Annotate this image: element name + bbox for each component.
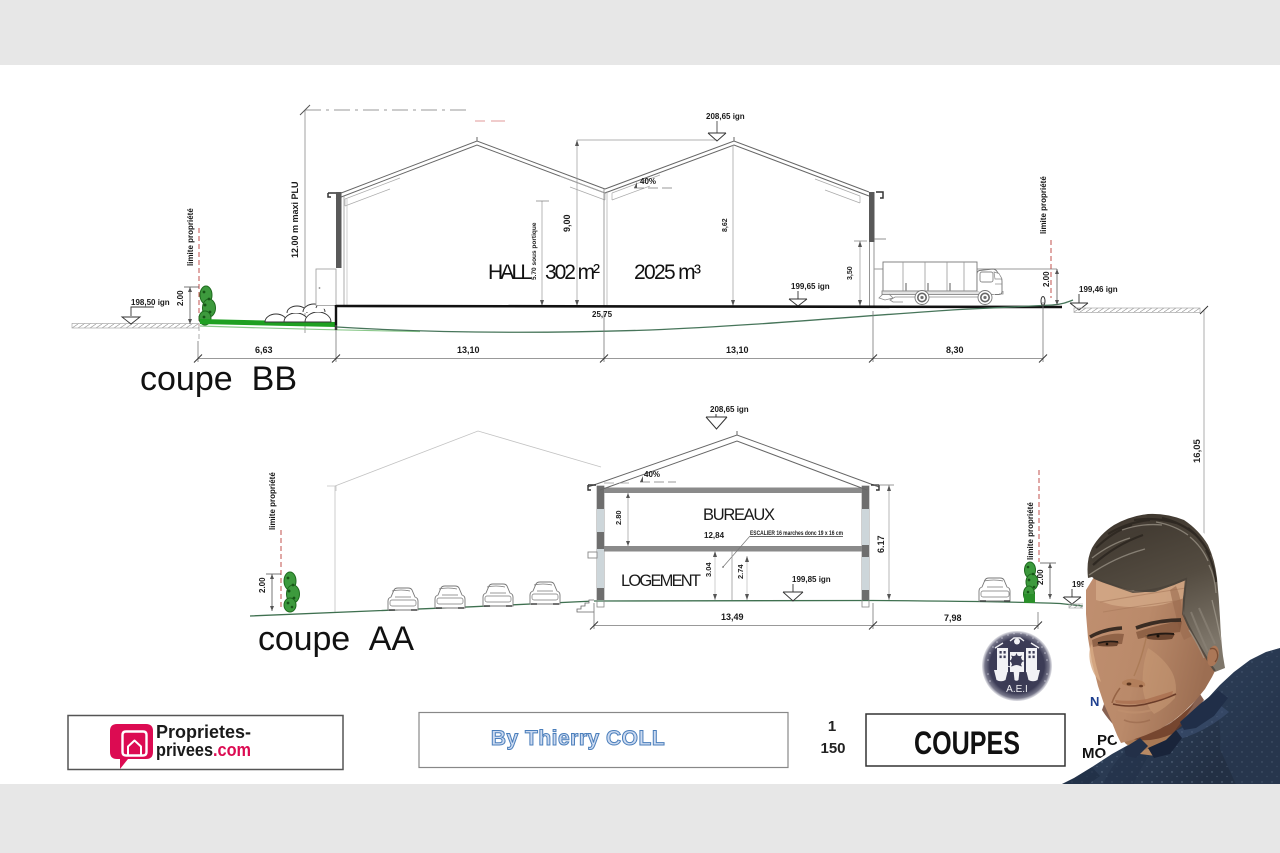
svg-text:limite propriété: limite propriété	[186, 208, 195, 266]
svg-text:8,62: 8,62	[722, 218, 729, 232]
svg-text:12.00 m maxi PLU: 12.00 m maxi PLU	[290, 181, 300, 258]
svg-text:199,65 ign: 199,65 ign	[791, 282, 830, 291]
svg-text:198,50 ign: 198,50 ign	[131, 298, 170, 307]
svg-text:13,10: 13,10	[726, 345, 749, 355]
svg-text:16,05: 16,05	[1192, 439, 1203, 463]
svg-text:199,46 ign: 199,46 ign	[1079, 285, 1118, 294]
svg-text:6.17: 6.17	[876, 535, 886, 553]
svg-text:N: N	[1090, 694, 1099, 709]
svg-text:8,30: 8,30	[946, 345, 964, 355]
svg-text:COUPES: COUPES	[914, 725, 1020, 761]
svg-text:9,00: 9,00	[562, 214, 572, 232]
svg-text:limite propriété: limite propriété	[268, 472, 277, 530]
svg-text:limite propriété: limite propriété	[1026, 502, 1035, 560]
svg-text:limite propriété: limite propriété	[1039, 176, 1048, 234]
svg-text:2.00: 2.00	[258, 577, 267, 593]
svg-text:A.E.I: A.E.I	[1006, 684, 1028, 695]
svg-text:1: 1	[828, 718, 836, 735]
svg-text:3.04: 3.04	[704, 562, 713, 577]
svg-text:7,98: 7,98	[944, 613, 962, 623]
svg-text:13,49: 13,49	[721, 612, 744, 622]
svg-text:2.80: 2.80	[614, 510, 623, 525]
svg-text:3,50: 3,50	[847, 266, 854, 280]
svg-text:302 m²: 302 m²	[545, 261, 600, 284]
svg-text:150: 150	[820, 740, 845, 757]
svg-text:2025 m³: 2025 m³	[634, 261, 701, 284]
svg-text:12,84: 12,84	[704, 531, 725, 540]
svg-text:5.70 sous portique: 5.70 sous portique	[531, 222, 538, 280]
svg-text:2.00: 2.00	[1036, 569, 1045, 585]
svg-text:2.00: 2.00	[176, 290, 185, 306]
svg-text:2.00: 2.00	[1042, 271, 1051, 287]
svg-text:208,65 ign: 208,65 ign	[706, 112, 745, 121]
svg-text:By Thierry COLL: By Thierry COLL	[491, 727, 665, 750]
svg-text:Proprietes-: Proprietes-	[156, 722, 251, 742]
svg-text:6,63: 6,63	[255, 345, 273, 355]
svg-text:13,10: 13,10	[457, 345, 480, 355]
svg-text:privees.com: privees.com	[156, 740, 251, 760]
svg-text:199,85 ign: 199,85 ign	[792, 575, 831, 584]
svg-text:2.74: 2.74	[736, 564, 745, 579]
svg-text:coupe AA: coupe AA	[258, 620, 414, 658]
svg-text:BUREAUX: BUREAUX	[703, 506, 775, 524]
svg-text:208,65 ign: 208,65 ign	[710, 405, 749, 414]
svg-text:LOGEMENT: LOGEMENT	[621, 572, 701, 590]
svg-text:ESCALIER 16 marches donc 19 x: ESCALIER 16 marches donc 19 x 16 cm	[750, 530, 843, 537]
svg-text:coupe BB: coupe BB	[140, 360, 297, 398]
svg-text:HALL: HALL	[488, 261, 532, 284]
svg-text:25,75: 25,75	[592, 310, 613, 319]
svg-text:40%: 40%	[640, 177, 656, 186]
svg-text:40%: 40%	[644, 470, 660, 479]
